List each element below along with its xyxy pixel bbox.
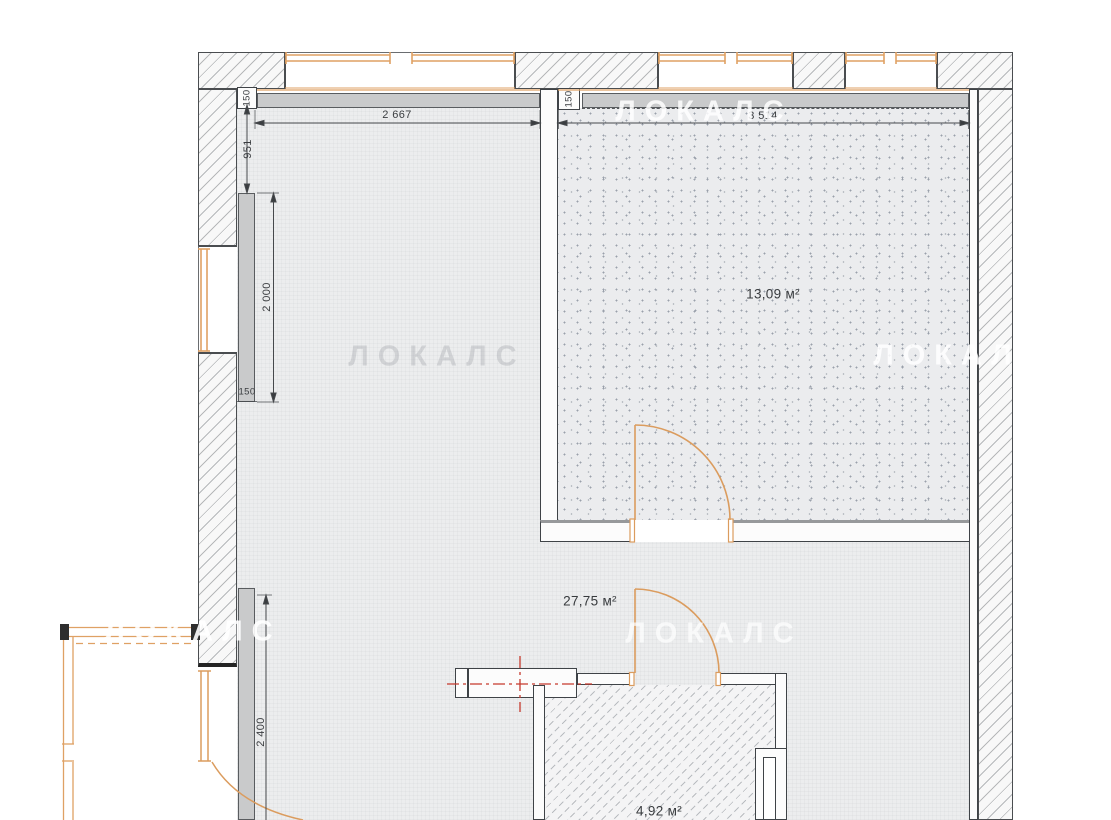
dimension-2400: 2 400: [255, 717, 267, 747]
door-swing-arc-room4: [635, 589, 719, 673]
window-frame-left: [198, 249, 210, 351]
window-frame-top-1: [285, 52, 515, 88]
room-27-area-label: 27,75 м²: [563, 594, 617, 609]
door-swing-arc-balcony: [212, 762, 303, 820]
centerline-red: [447, 656, 592, 712]
margin-right: [1013, 0, 1111, 820]
room-4-area-label: 4,92 м²: [636, 804, 682, 819]
dimension-lines: [237, 105, 969, 820]
door-room13: [630, 425, 733, 542]
dimension-150-pier: 150: [238, 387, 255, 398]
dimension-150-right: 150: [564, 90, 575, 107]
window-frame-top-3: [845, 52, 937, 88]
dimension-3514: 3 514: [748, 110, 778, 122]
floor-plan: 2 667 3 514 951 150 150 2 000 150 2 400 …: [0, 0, 1111, 820]
plan-linework: [0, 0, 1111, 820]
room-13-area-label: 13,09 м²: [746, 287, 800, 302]
balcony-anchor-right: [191, 624, 200, 640]
door-balcony: [198, 671, 303, 820]
balcony-outline: [62, 628, 199, 820]
door-swing-arc-room13: [635, 425, 730, 520]
dimension-2667: 2 667: [382, 109, 412, 121]
window-frame-top-2: [658, 52, 793, 88]
dimension-2000: 2 000: [261, 282, 273, 312]
door-room4: [630, 589, 721, 686]
balcony-anchor-left: [60, 624, 69, 640]
dimension-150-left: 150: [242, 89, 253, 106]
dimension-951: 951: [242, 139, 254, 159]
